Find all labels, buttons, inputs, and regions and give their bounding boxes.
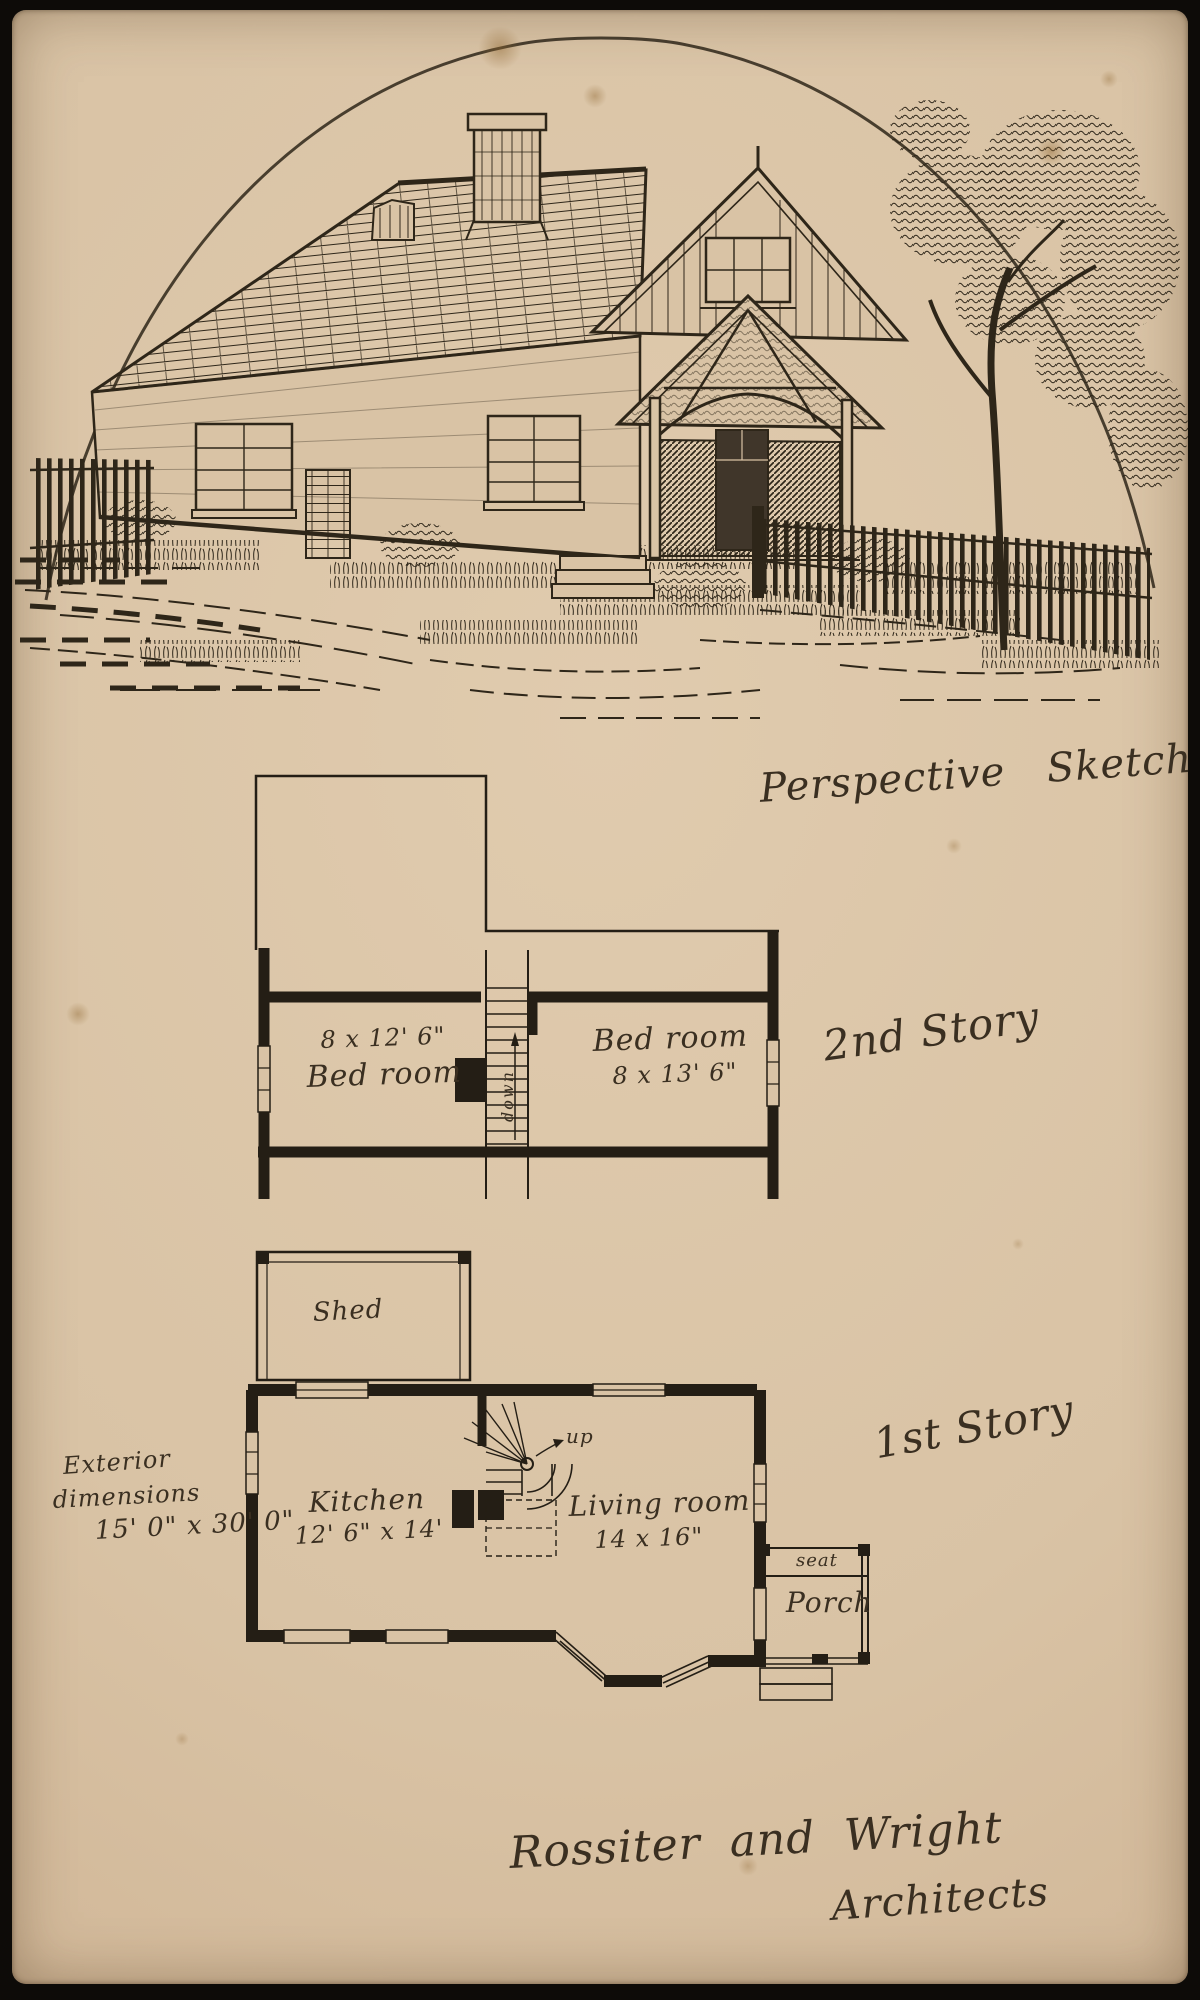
bedroom-right-name: Bed room xyxy=(592,1019,749,1059)
up-arrow xyxy=(536,1439,564,1456)
window-right xyxy=(767,1040,779,1106)
bedroom-left-dims: 8 x 12' 6" xyxy=(320,1022,446,1054)
stair-up-label: up xyxy=(566,1424,594,1448)
gate-post xyxy=(752,506,764,598)
perspective-sketch xyxy=(15,38,1188,718)
porch-seat-label: seat xyxy=(796,1550,838,1571)
roof-outline xyxy=(256,776,779,950)
porch-steps xyxy=(760,1668,832,1700)
living-room-name: Living room xyxy=(568,1484,751,1523)
picket-fence-right xyxy=(752,506,1152,660)
porch-name: Porch xyxy=(786,1586,873,1619)
second-story-plan xyxy=(256,776,779,1199)
brick-pier xyxy=(306,470,350,558)
winder-stairs xyxy=(452,1396,572,1556)
stairs-down xyxy=(455,950,528,1199)
window-left xyxy=(258,1046,270,1112)
bedroom-left-name: Bed room xyxy=(306,1055,463,1095)
shed-label: Shed xyxy=(312,1294,384,1328)
kitchen-name: Kitchen xyxy=(308,1482,426,1519)
stair-newel-block xyxy=(478,1490,504,1520)
bedroom-right-dims: 8 x 13' 6" xyxy=(612,1058,738,1090)
chimney-block xyxy=(452,1490,474,1528)
scanned-plate: Perspective Sketch 2nd Story 8 x 12' 6" … xyxy=(0,0,1200,2000)
living-room-dims: 14 x 16" xyxy=(594,1522,704,1554)
stair-down-label: down xyxy=(498,1070,517,1122)
chimney xyxy=(466,114,548,240)
